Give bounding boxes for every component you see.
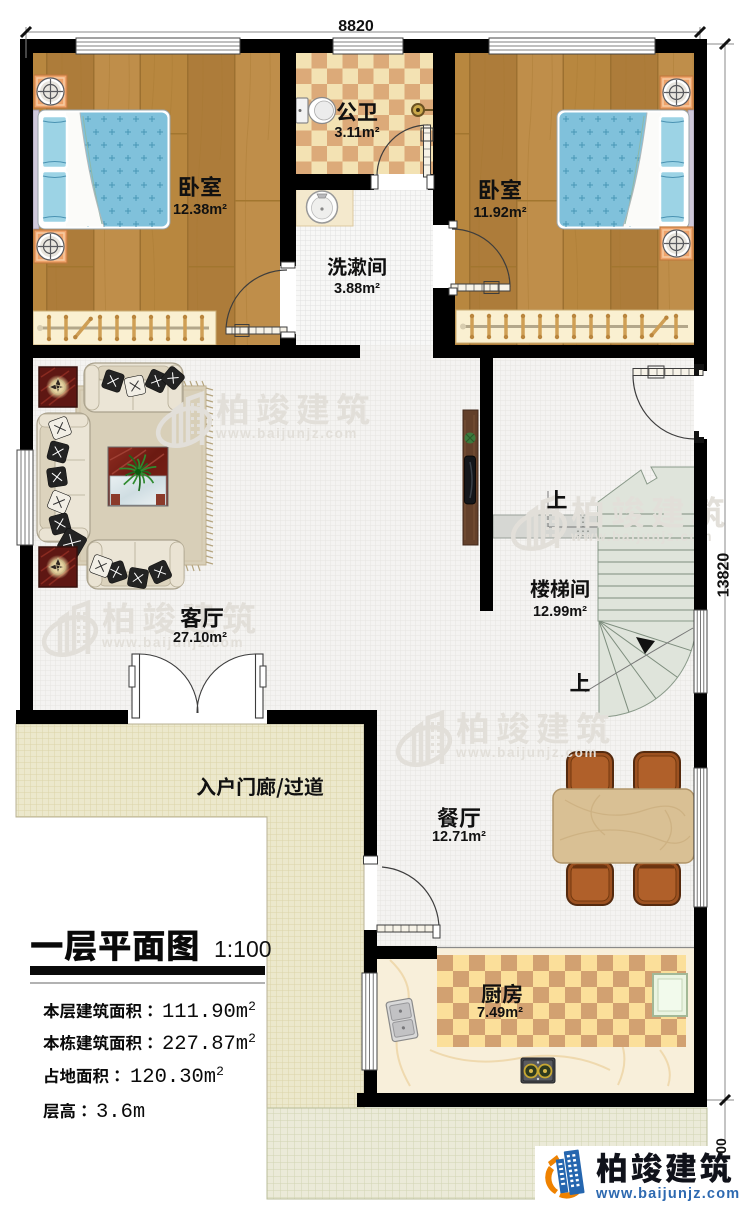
svg-text:7.49m²: 7.49m² (477, 1005, 523, 1021)
svg-text:111.90m2: 111.90m2 (162, 999, 256, 1024)
svg-text:3.6m: 3.6m (96, 1101, 145, 1124)
svg-text:27.10m²: 27.10m² (173, 630, 227, 646)
svg-text:3.11m²: 3.11m² (334, 125, 379, 141)
svg-text:11.92m²: 11.92m² (473, 205, 526, 221)
svg-text:120.30m2: 120.30m2 (130, 1064, 224, 1089)
svg-text:www.baijunjz.com: www.baijunjz.com (595, 1186, 740, 1202)
svg-text:1:100: 1:100 (214, 936, 272, 962)
svg-text:8820: 8820 (338, 18, 374, 35)
svg-text:12.71m²: 12.71m² (432, 829, 486, 845)
svg-text:227.87m2: 227.87m2 (162, 1031, 256, 1056)
svg-text:3.88m²: 3.88m² (334, 281, 380, 297)
svg-text:12.99m²: 12.99m² (533, 604, 587, 620)
svg-text:12.38m²: 12.38m² (173, 202, 227, 218)
